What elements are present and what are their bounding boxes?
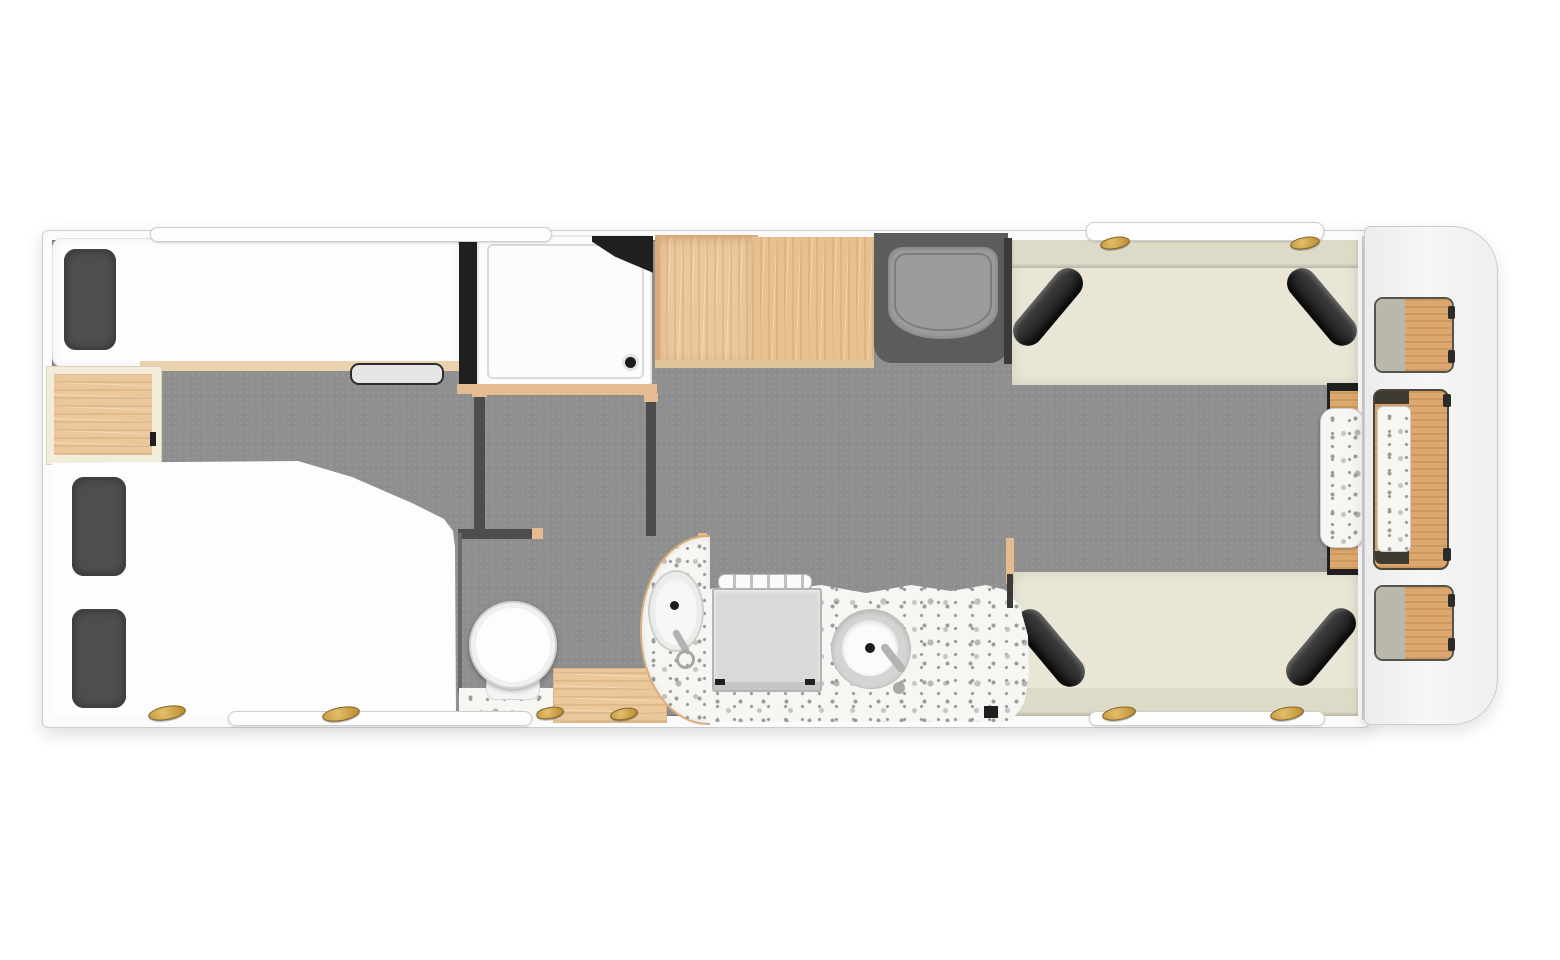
pod-chair-top [1374, 297, 1454, 373]
bench-jamb-bottom [1007, 574, 1013, 608]
corridor-wall-right [646, 396, 656, 536]
window-bar-bottom-left [228, 711, 532, 726]
double-bed-pillow-bottom [72, 609, 126, 708]
pod-chair-top-hook-2 [1448, 350, 1455, 363]
pod-chair-top-cushion [1376, 299, 1405, 371]
pod-chair-top-seat [1405, 299, 1452, 371]
sink-tap-tip [893, 682, 905, 694]
power-socket [984, 706, 998, 718]
washbasin-drain [670, 601, 679, 610]
pod-table-insert [1377, 406, 1411, 552]
pod-chair-bottom [1374, 585, 1454, 661]
washroom-wall-top [458, 529, 538, 539]
corridor-wall-left [474, 391, 485, 539]
basin-tap-handle [676, 650, 695, 669]
lounge-jamb-top [1004, 238, 1012, 364]
toilet [469, 601, 557, 689]
bedside-chest-top [54, 374, 152, 455]
shower-tray-lip [487, 244, 644, 379]
wardrobe-plinth [655, 360, 874, 368]
window-bar-top-left [150, 227, 552, 242]
corridor-wall-right-cap [644, 393, 658, 402]
open-wardrobe [655, 235, 758, 368]
pod-table-cap-bottom [1375, 551, 1409, 564]
pod-chair-bottom-hook-1 [1448, 594, 1455, 607]
under-bed-step-handle [350, 363, 444, 385]
corridor-wall-left-cap-top [472, 388, 487, 397]
pod-table-hook-2 [1443, 548, 1451, 561]
entry-mat-outline [894, 253, 992, 331]
double-bed-pillow-top [72, 477, 126, 576]
hob-control-right [805, 679, 815, 685]
pod-table-cap-top [1375, 391, 1409, 404]
pod-table-hook-1 [1443, 394, 1451, 407]
pod-chair-top-hook-1 [1448, 306, 1455, 319]
washroom-door-jamb [532, 528, 543, 539]
hob [712, 588, 822, 692]
hob-control-left [715, 679, 725, 685]
worktop-cabinet [752, 237, 874, 364]
pod-chair-bottom-hook-2 [1448, 638, 1455, 651]
pod-chair-bottom-cushion [1376, 587, 1405, 659]
floorplan-canvas [0, 0, 1560, 960]
shower-wall-left [459, 232, 477, 388]
pod-chair-bottom-seat [1405, 587, 1452, 659]
shower-drain [625, 357, 636, 368]
washroom-wall-left [458, 533, 462, 693]
single-bed-pillow [64, 249, 116, 350]
chest-latch [150, 432, 156, 446]
shower-threshold [475, 384, 657, 395]
round-sink-drain [865, 643, 875, 653]
side-table-top [1320, 408, 1364, 548]
